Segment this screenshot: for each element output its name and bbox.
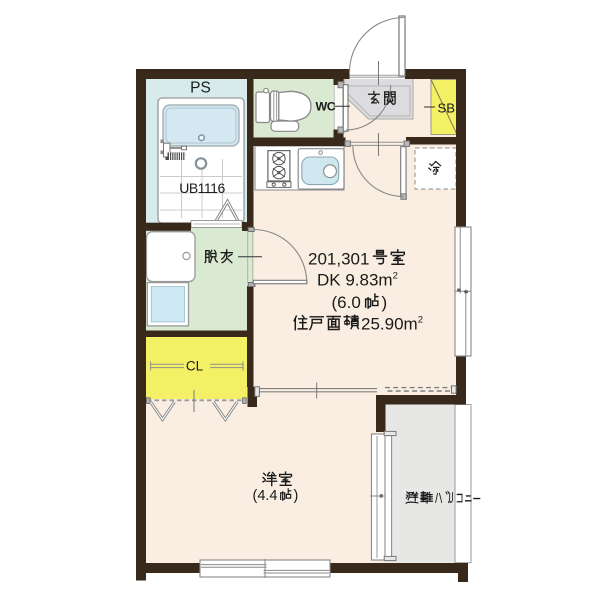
- svg-text:25.90m2: 25.90m2: [361, 315, 423, 334]
- svg-text:WC: WC: [316, 100, 336, 114]
- svg-text:UB1116: UB1116: [179, 180, 225, 196]
- svg-text:(6.0: (6.0: [332, 293, 361, 312]
- svg-text:PS: PS: [190, 80, 211, 97]
- svg-text:CL: CL: [186, 359, 204, 374]
- svg-text:DK 9.83m2: DK 9.83m2: [317, 271, 398, 290]
- svg-text:): ): [382, 293, 388, 312]
- svg-text:SB: SB: [438, 101, 456, 116]
- svg-text:): ): [294, 488, 299, 504]
- svg-text:(4.4: (4.4: [253, 488, 278, 504]
- svg-text:201,301: 201,301: [308, 250, 369, 269]
